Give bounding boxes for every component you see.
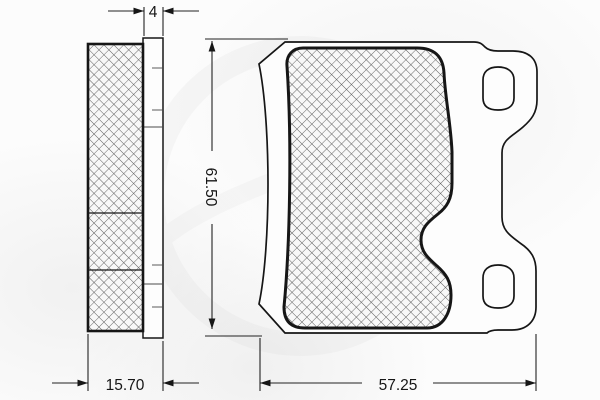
- dim-arrowhead: [163, 8, 174, 15]
- dim-arrowhead: [78, 380, 89, 387]
- dim-arrowhead: [526, 380, 537, 387]
- backplate-side: [143, 38, 163, 338]
- brake-pad-technical-drawing: 4 15.70 61.50: [0, 0, 600, 400]
- dim-overall-thickness-label: 15.70: [106, 377, 145, 394]
- dim-pad-height-label: 61.50: [202, 168, 219, 207]
- dim-arrowhead: [163, 380, 174, 387]
- dim-pad-width-label: 57.25: [379, 377, 418, 394]
- dim-overall-thickness: 15.70: [52, 334, 199, 394]
- dim-arrowhead: [134, 8, 145, 15]
- dim-backplate-thickness-label: 4: [149, 4, 158, 21]
- upper-mounting-hole: [483, 67, 514, 110]
- drawing-canvas: 4 15.70 61.50: [0, 0, 600, 400]
- front-view: [259, 42, 537, 333]
- side-view: [88, 38, 163, 338]
- dim-backplate-thickness: 4: [108, 4, 199, 36]
- lower-mounting-hole: [483, 265, 514, 308]
- dim-arrowhead: [260, 380, 271, 387]
- friction-material-side: [88, 44, 143, 331]
- dim-arrowhead: [209, 41, 216, 52]
- friction-material-front: [284, 48, 452, 328]
